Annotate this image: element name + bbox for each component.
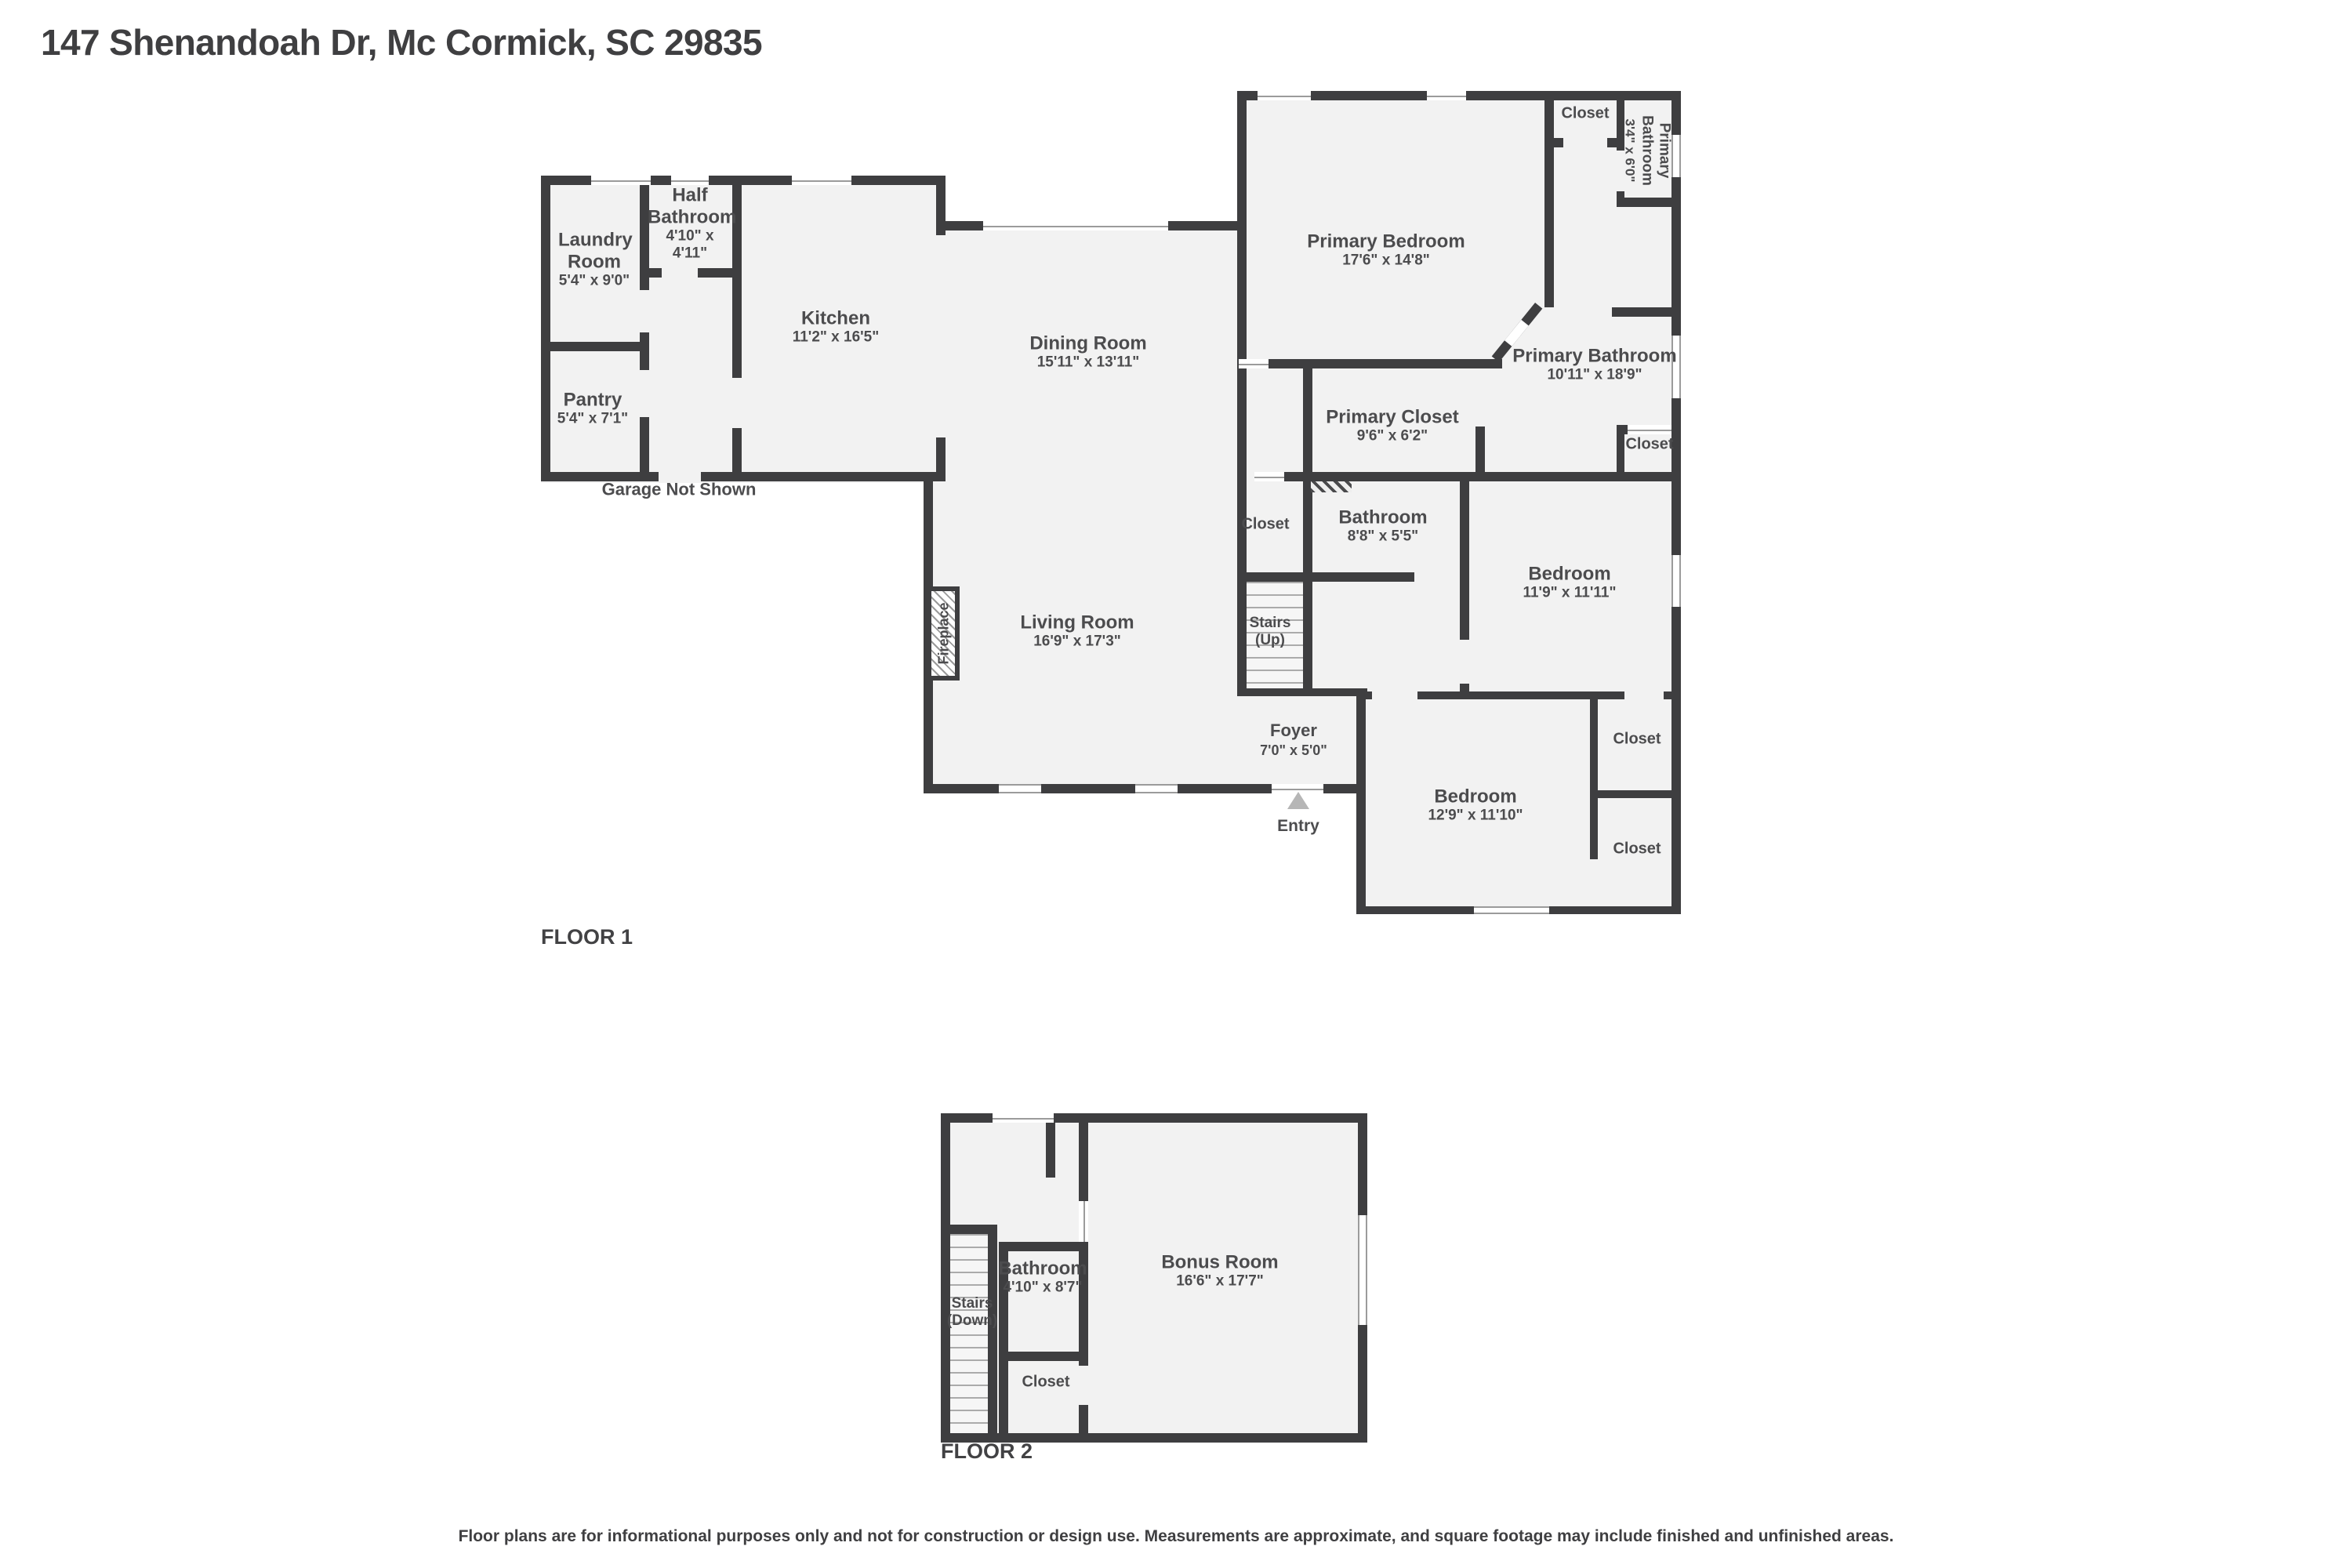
window — [993, 1113, 1054, 1123]
door-opening — [1079, 1201, 1088, 1242]
disclaimer-text: Floor plans are for informational purpos… — [0, 1527, 2352, 1546]
wall — [1079, 1405, 1088, 1443]
wall — [1046, 1123, 1055, 1178]
wall — [1358, 1325, 1367, 1443]
room-label-closet-f2: Closet — [1005, 1374, 1087, 1392]
floor2-plan: Stairs (Down) Bathroom 4'10" x 8'7" Clos… — [0, 0, 2352, 1568]
room-label-bonus: Bonus Room 16'6" x 17'7" — [1126, 1252, 1314, 1290]
stairs-down-label: Stairs (Down) — [938, 1297, 1007, 1331]
window — [1358, 1215, 1367, 1325]
wall — [999, 1352, 1088, 1361]
wall — [941, 1113, 950, 1443]
room-label-bathroom-f2: Bathroom 4'10" x 8'7" — [996, 1258, 1090, 1297]
stairs-down-treads — [950, 1234, 988, 1433]
floor2-label: FLOOR 2 — [941, 1439, 1033, 1463]
wall — [1079, 1123, 1088, 1201]
wall — [999, 1242, 1088, 1251]
floor-plan-page: 147 Shenandoah Dr, Mc Cormick, SC 29835 — [0, 0, 2352, 1568]
wall — [1358, 1113, 1367, 1215]
wall — [988, 1225, 997, 1443]
